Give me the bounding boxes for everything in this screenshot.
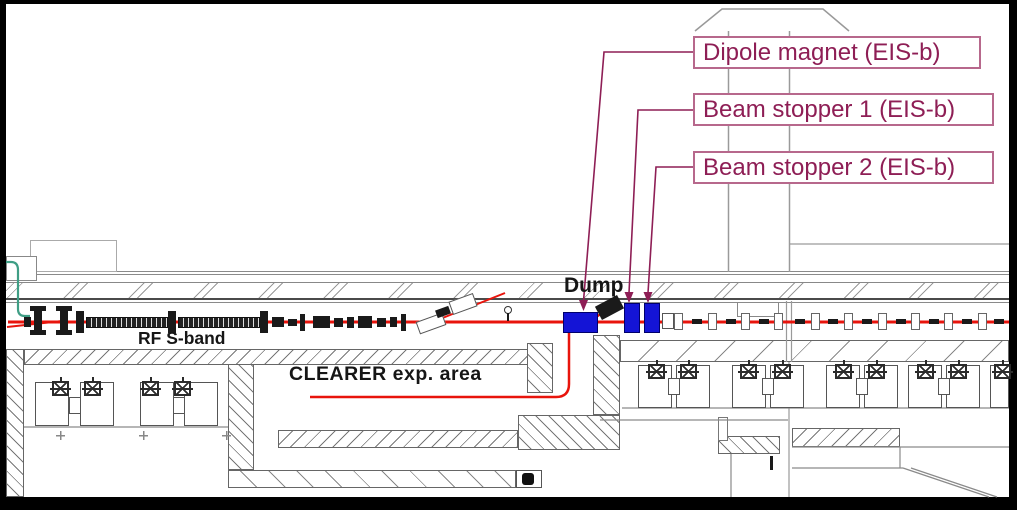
quadrupole [708, 313, 717, 330]
quadrupole [741, 313, 750, 330]
beamline-element [726, 319, 736, 324]
beamline-element [377, 318, 386, 327]
klystron-icon [174, 381, 191, 396]
wall-block-right [593, 335, 620, 415]
beamline-element [828, 319, 838, 324]
klystron-icon [835, 364, 852, 379]
upper-left-box [6, 256, 37, 281]
right-lower-hatch-strip [792, 428, 900, 447]
quadrupole [774, 313, 783, 330]
dump-label: Dump [564, 274, 624, 298]
callout-beam-stopper-1-text: Beam stopper 1 (EIS-b) [703, 96, 955, 123]
door-jamb-mark [770, 456, 773, 470]
klystron-icon [84, 381, 101, 396]
beam-stopper-2 [644, 303, 660, 333]
rf-coupler [76, 311, 84, 333]
left-edge-wall-hatch [6, 349, 24, 497]
klystron-icon [648, 364, 665, 379]
beamline-element [288, 319, 297, 326]
clearer-inner-wall [278, 430, 518, 448]
cabinet-connector [668, 378, 680, 395]
beamline-element [994, 319, 1004, 324]
electron-gun [56, 330, 72, 335]
callout-beam-stopper-1: Beam stopper 1 (EIS-b) [693, 93, 994, 126]
beamline-element [272, 317, 284, 327]
callout-dipole-magnet: Dipole magnet (EIS-b) [693, 36, 981, 69]
gallery-line [35, 271, 1009, 272]
pillar-hatch [228, 364, 254, 470]
quadrupole [844, 313, 853, 330]
beamline-element [401, 314, 406, 331]
wall-block-left [527, 343, 553, 393]
quadrupole [911, 313, 920, 330]
electron-gun [30, 330, 46, 335]
survey-marker [139, 431, 148, 440]
gallery-wall-hatch [6, 282, 1009, 298]
beamline-element [334, 318, 343, 327]
cabinet-connector [173, 397, 185, 414]
klystron-icon [917, 364, 934, 379]
beamline-element [313, 316, 330, 328]
beamline-element [962, 319, 972, 324]
klystron-icon [774, 364, 791, 379]
beamline-element [759, 319, 769, 324]
cabinet-connector [938, 378, 950, 395]
beamline-element [347, 317, 354, 328]
callout-dipole-magnet-text: Dipole magnet (EIS-b) [703, 39, 940, 66]
survey-marker [222, 431, 231, 440]
quadrupole [811, 313, 820, 330]
callout-beam-stopper-2: Beam stopper 2 (EIS-b) [693, 151, 994, 184]
gallery-line [35, 274, 1009, 275]
beamline-element [692, 319, 702, 324]
beamline-drawing: Dump RF S-band CLEARER exp. area Dipole … [0, 0, 1017, 510]
cabinet-connector [69, 397, 81, 414]
klystron-icon [868, 364, 885, 379]
rf-s-band-label: RF S-band [138, 328, 226, 349]
right-wall-hatch [620, 340, 1009, 362]
survey-marker [56, 431, 65, 440]
rf-structure [178, 317, 260, 328]
beamline-bracket [662, 313, 674, 329]
cabinet-connector [856, 378, 868, 395]
klystron-icon [680, 364, 697, 379]
beamline-element [358, 316, 372, 328]
klystron-icon [142, 381, 159, 396]
dipole-magnet [563, 312, 598, 333]
cabinet-connector [762, 378, 774, 395]
beam-stopper-1 [624, 303, 640, 333]
door-leaf [522, 473, 534, 485]
beamline-element [300, 314, 305, 331]
bottom-strip-wall [228, 470, 516, 488]
klystron-icon [994, 364, 1011, 379]
beamline-element [390, 317, 397, 327]
quadrupole [674, 313, 683, 330]
quadrupole [978, 313, 987, 330]
upper-left-structure [30, 240, 117, 272]
clearer-area-label: CLEARER exp. area [289, 363, 482, 386]
beamline-element [795, 319, 805, 324]
beamline-element [896, 319, 906, 324]
valve-icon [507, 313, 509, 321]
callout-beam-stopper-2-text: Beam stopper 2 (EIS-b) [703, 154, 955, 181]
quadrupole [944, 313, 953, 330]
klystron-icon [950, 364, 967, 379]
rf-structure [86, 317, 168, 328]
dump-room-small-box [718, 417, 728, 441]
electron-gun [24, 317, 31, 327]
beamline-element [929, 319, 939, 324]
gallery-line [6, 302, 1009, 303]
passage-bottom-wall [518, 415, 620, 450]
quadrupole [878, 313, 887, 330]
gallery-wall-edge [6, 298, 1009, 300]
klystron-icon [52, 381, 69, 396]
beamline-element [862, 319, 872, 324]
rf-coupler [260, 311, 268, 333]
klystron-icon [740, 364, 757, 379]
